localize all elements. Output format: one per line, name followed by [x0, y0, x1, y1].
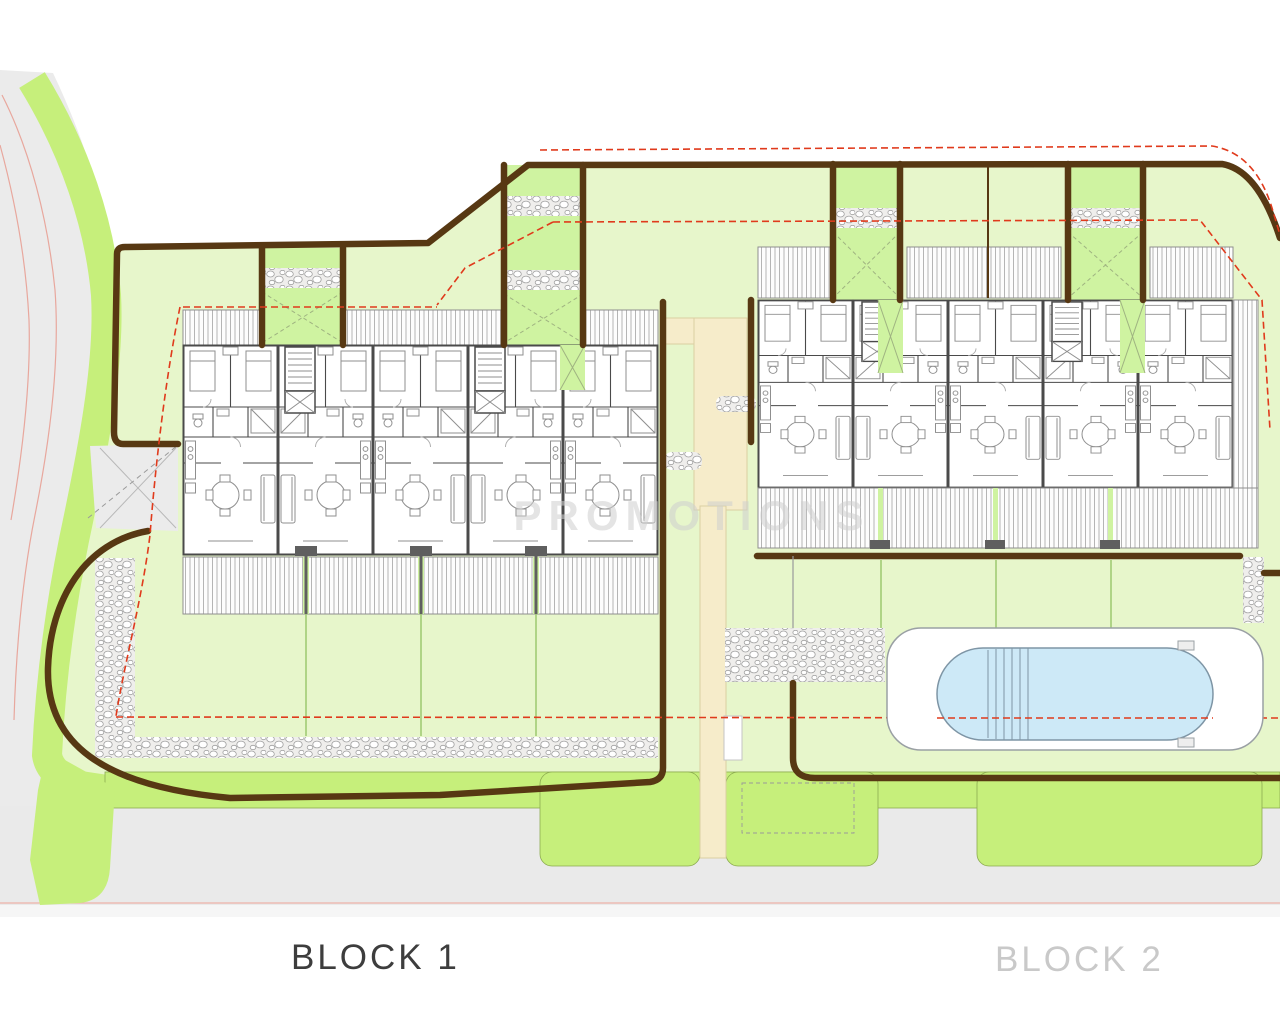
site-plan-canvas: PROMOTIONS [0, 0, 1280, 1024]
stair-core [1052, 302, 1082, 361]
block1-label: BLOCK 1 [291, 938, 460, 978]
stair-core [285, 347, 315, 413]
stair-core [475, 347, 505, 413]
swimming-pool [937, 648, 1213, 740]
site-plan: PROMOTIONS BLOCK 1 BLOCK 2 [0, 0, 1280, 1024]
watermark-text: PROMOTIONS [513, 492, 870, 539]
apartment-unit [758, 300, 853, 488]
path-gate [724, 716, 742, 760]
apartment-unit [1138, 300, 1233, 488]
pool-ladder [1178, 738, 1194, 747]
driveway [88, 444, 178, 531]
apartment-unit [373, 345, 468, 555]
block2-label: BLOCK 2 [995, 940, 1164, 980]
apartment-unit [948, 300, 1043, 488]
pool-ladder [1178, 641, 1194, 650]
apartment-unit [183, 345, 278, 555]
pool-area [887, 628, 1263, 750]
